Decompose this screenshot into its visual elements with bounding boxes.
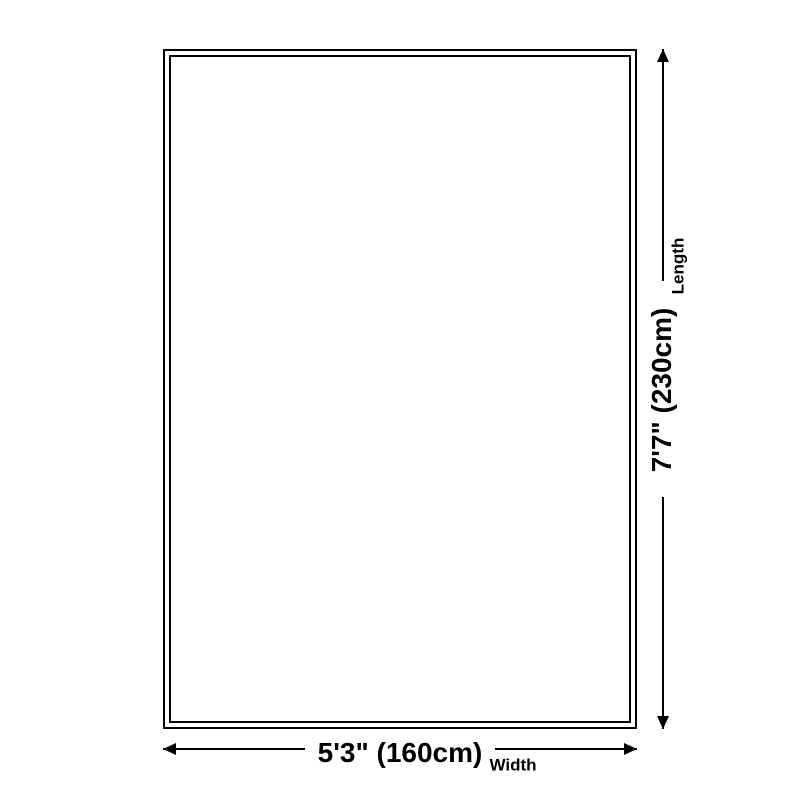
length-value: 7'7" (230cm) (648, 308, 676, 473)
width-arrow-line-left (163, 748, 305, 750)
width-arrow-line-right (495, 748, 637, 750)
dimension-diagram: Length 7'7" (230cm) 5'3" (160cm) Width (0, 0, 800, 800)
length-arrow-line-top (662, 49, 664, 281)
length-arrow-line-bottom (662, 497, 664, 729)
width-label: Width (489, 757, 536, 774)
width-value: 5'3" (160cm) (318, 739, 483, 767)
arrow-down-icon (657, 716, 669, 729)
length-label: Length (670, 238, 687, 295)
rug-outline-outer (163, 49, 637, 729)
arrow-right-icon (624, 743, 637, 755)
rug-outline-inner (169, 55, 631, 723)
